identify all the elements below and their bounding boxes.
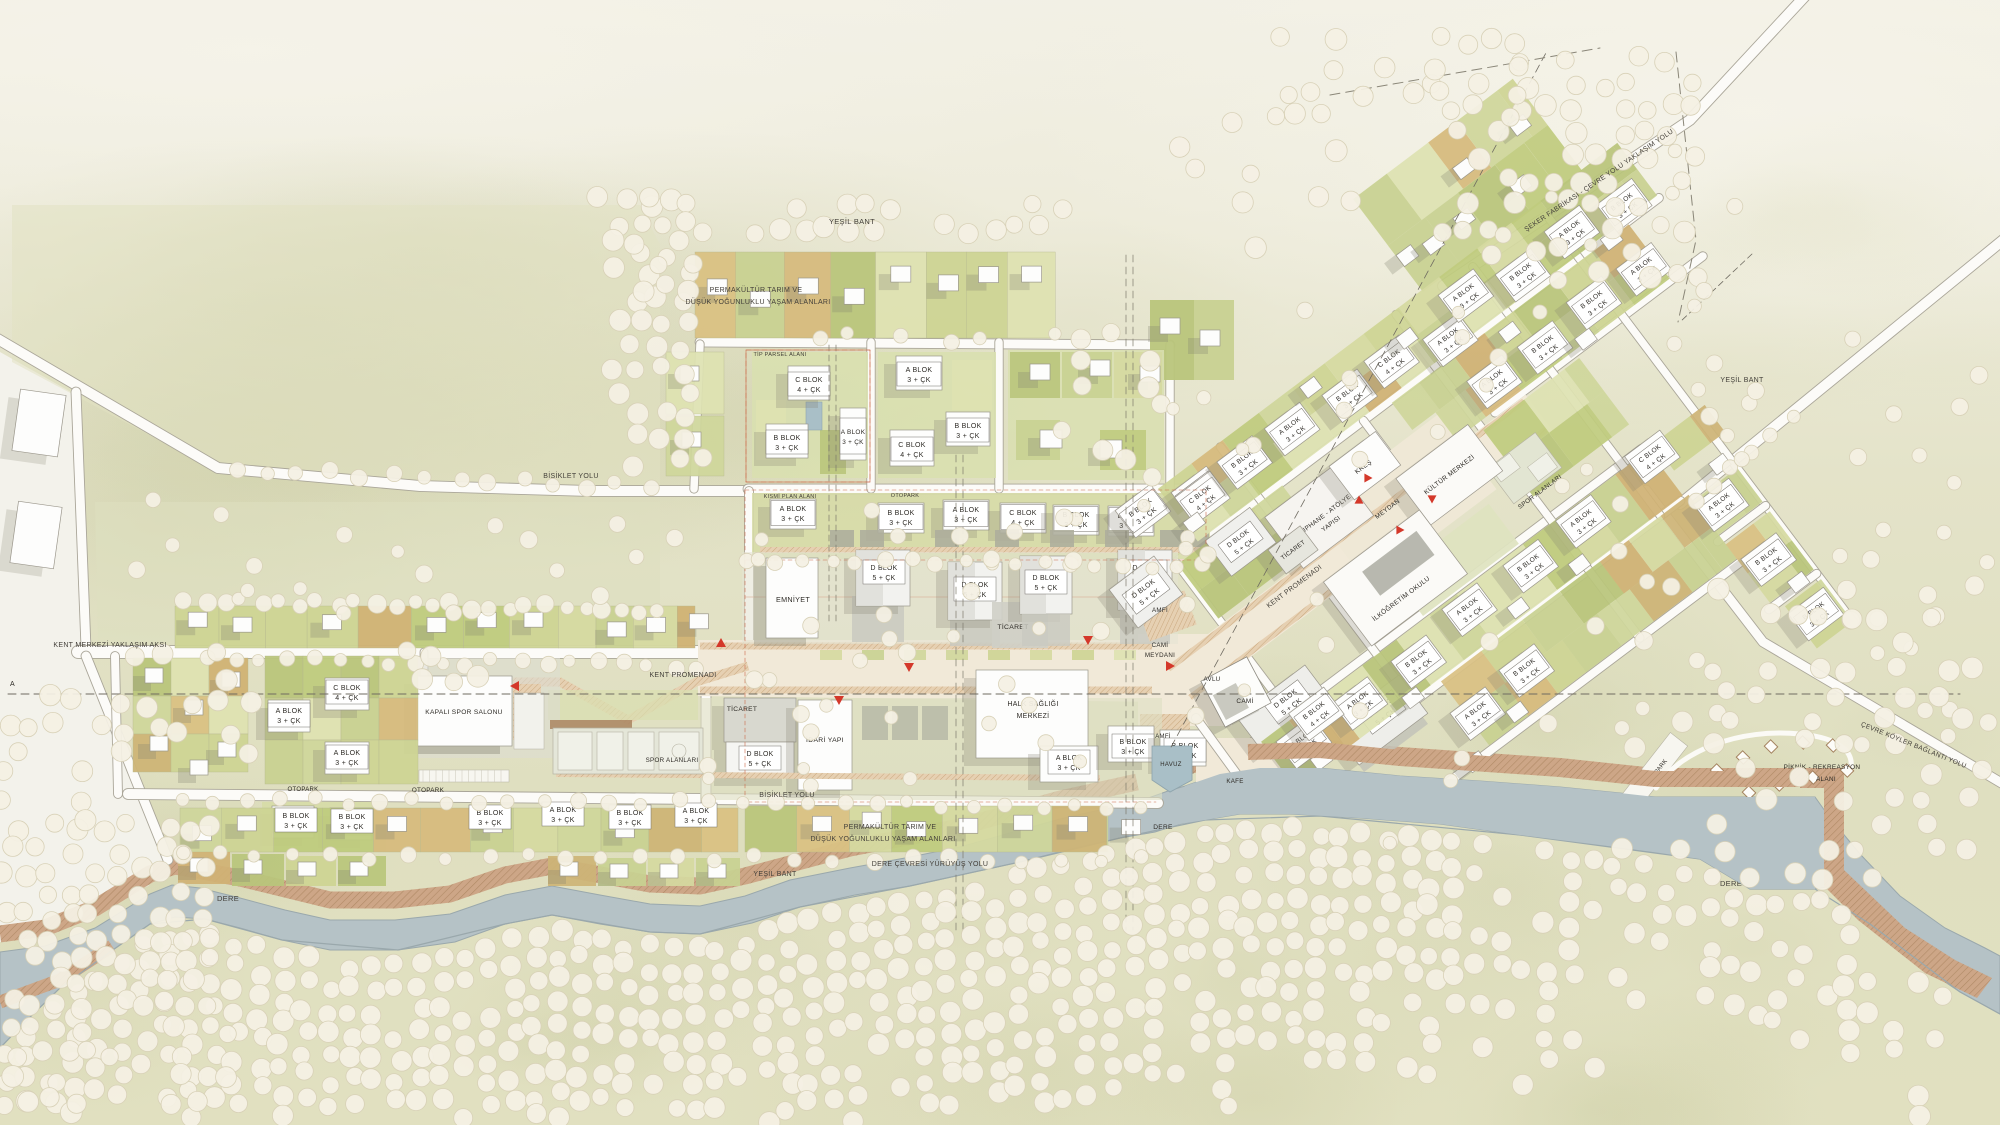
svg-text:C BLOK: C BLOK: [333, 685, 361, 692]
svg-text:EMNİYET: EMNİYET: [776, 595, 810, 604]
svg-text:5 + ÇK: 5 + ÇK: [872, 575, 895, 582]
svg-text:A BLOK: A BLOK: [276, 708, 303, 715]
svg-text:A BLOK: A BLOK: [780, 506, 807, 513]
svg-text:3 + ÇK: 3 + ÇK: [842, 439, 864, 446]
svg-text:KAPALI SPOR SALONU: KAPALI SPOR SALONU: [425, 709, 502, 716]
svg-text:TİP PARSEL ALANI: TİP PARSEL ALANI: [754, 351, 807, 358]
svg-text:3 + ÇK: 3 + ÇK: [684, 818, 707, 825]
svg-text:SPOR ALANLARI: SPOR ALANLARI: [646, 757, 699, 764]
svg-text:D BLOK: D BLOK: [1032, 575, 1059, 582]
svg-text:KENT PROMENADI: KENT PROMENADI: [649, 672, 716, 679]
svg-text:A BLOK: A BLOK: [334, 750, 361, 757]
svg-text:3 + ÇK: 3 + ÇK: [618, 820, 641, 827]
svg-text:DERE: DERE: [1153, 824, 1173, 831]
svg-text:D BLOK: D BLOK: [746, 751, 773, 758]
svg-text:3 + ÇK: 3 + ÇK: [335, 760, 358, 767]
svg-text:HAVUZ: HAVUZ: [1160, 762, 1181, 768]
svg-text:3 + ÇK: 3 + ÇK: [277, 718, 300, 725]
svg-text:MEYDANI: MEYDANI: [1145, 652, 1175, 659]
svg-text:OTOPARK: OTOPARK: [412, 787, 445, 794]
svg-text:TİCARET: TİCARET: [727, 704, 757, 713]
svg-text:PERMAKÜLTÜR TARIM VE: PERMAKÜLTÜR TARIM VE: [710, 286, 803, 294]
svg-text:ALANI: ALANI: [1816, 776, 1836, 783]
svg-text:4 + ÇK: 4 + ÇK: [797, 387, 820, 394]
svg-text:DÜŞÜK YOĞUNLUKLU YAŞAM ALANLAR: DÜŞÜK YOĞUNLUKLU YAŞAM ALANLARI: [810, 834, 955, 843]
svg-text:3 + ÇK: 3 + ÇK: [478, 820, 501, 827]
svg-text:A BLOK: A BLOK: [953, 507, 980, 514]
svg-text:AVLU: AVLU: [1204, 676, 1221, 683]
svg-text:C BLOK: C BLOK: [795, 377, 823, 384]
svg-text:B BLOK: B BLOK: [773, 435, 800, 442]
svg-text:YEŞİL BANT: YEŞİL BANT: [1720, 375, 1764, 384]
svg-text:A BLOK: A BLOK: [841, 429, 866, 436]
svg-text:CAMİ: CAMİ: [1152, 642, 1169, 649]
svg-text:C BLOK: C BLOK: [1009, 510, 1037, 517]
svg-text:YEŞİL BANT: YEŞİL BANT: [829, 217, 875, 226]
svg-text:B BLOK: B BLOK: [887, 510, 914, 517]
svg-text:3 + ÇK: 3 + ÇK: [889, 520, 912, 527]
svg-text:5 + ÇK: 5 + ÇK: [748, 761, 771, 768]
svg-text:PERMAKÜLTÜR TARIM VE: PERMAKÜLTÜR TARIM VE: [844, 823, 937, 831]
svg-text:3 + ÇK: 3 + ÇK: [907, 377, 930, 384]
svg-text:DERE ÇEVRESİ YÜRÜYÜŞ YOLU: DERE ÇEVRESİ YÜRÜYÜŞ YOLU: [872, 859, 989, 868]
svg-text:A BLOK: A BLOK: [906, 367, 933, 374]
svg-text:3 + ÇK: 3 + ÇK: [781, 516, 804, 523]
svg-text:A: A: [10, 681, 15, 688]
svg-text:3 + ÇK: 3 + ÇK: [954, 517, 977, 524]
svg-text:A BLOK: A BLOK: [550, 807, 577, 814]
svg-text:5 + ÇK: 5 + ÇK: [1034, 585, 1057, 592]
svg-text:BİSİKLET YOLU: BİSİKLET YOLU: [759, 790, 814, 799]
svg-text:B BLOK: B BLOK: [954, 423, 981, 430]
svg-text:4 + ÇK: 4 + ÇK: [900, 452, 923, 459]
svg-text:3 + ÇK: 3 + ÇK: [956, 433, 979, 440]
svg-text:OTOPARK: OTOPARK: [891, 493, 920, 499]
svg-text:KENT MERKEZİ YAKLAŞIM AKSI: KENT MERKEZİ YAKLAŞIM AKSI: [53, 640, 166, 649]
svg-text:4 + ÇK: 4 + ÇK: [335, 695, 358, 702]
svg-text:AMFİ: AMFİ: [1155, 733, 1171, 740]
svg-text:KAFE: KAFE: [1226, 778, 1243, 785]
svg-text:BİSİKLET YOLU: BİSİKLET YOLU: [543, 471, 598, 480]
svg-text:DERE: DERE: [217, 894, 239, 903]
svg-text:KISMİ PLAN ALANI: KISMİ PLAN ALANI: [764, 493, 817, 500]
svg-text:3 + ÇK: 3 + ÇK: [340, 824, 363, 831]
svg-text:YEŞİL BANT: YEŞİL BANT: [753, 869, 797, 878]
svg-text:3 + ÇK: 3 + ÇK: [551, 817, 574, 824]
svg-text:B BLOK: B BLOK: [338, 814, 365, 821]
svg-text:CAMİ: CAMİ: [1236, 696, 1253, 705]
svg-text:3 + ÇK: 3 + ÇK: [284, 823, 307, 830]
svg-text:DÜŞÜK YOĞUNLUKLU YAŞAM ALANLAR: DÜŞÜK YOĞUNLUKLU YAŞAM ALANLARI: [685, 297, 830, 306]
svg-text:B BLOK: B BLOK: [282, 813, 309, 820]
svg-text:3 + ÇK: 3 + ÇK: [775, 445, 798, 452]
svg-text:A BLOK: A BLOK: [683, 808, 710, 815]
svg-text:C BLOK: C BLOK: [898, 442, 926, 449]
svg-text:AMFİ: AMFİ: [1152, 607, 1168, 614]
